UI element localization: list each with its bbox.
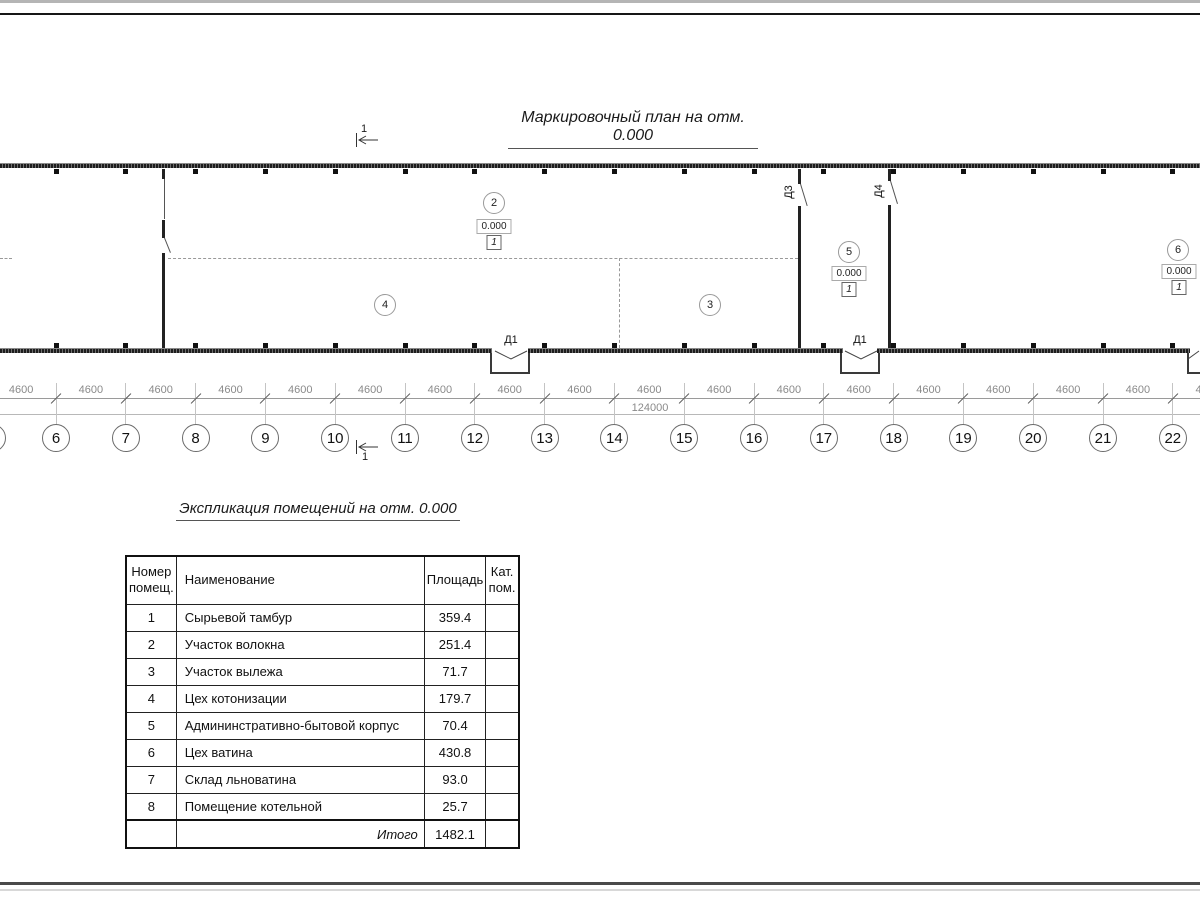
column-mark-bottom [54,343,59,348]
total-label: Итого [176,820,424,848]
exterior-wall-bottom-seg1 [0,348,492,353]
column-mark-bottom [263,343,268,348]
column-mark-bottom [1031,343,1036,348]
bay-dimension-label: 4600 [0,384,56,396]
sheet-frame-top-inner [0,13,1200,15]
column-mark-top [403,169,408,174]
cell-name: Цех ватина [176,739,424,766]
table-row: 3Участок вылежа71.7 [126,658,519,685]
room-floor-type-2: 1 [487,235,502,250]
cell-area: 251.4 [424,631,486,658]
room-elevation-2: 0.000 [476,219,511,234]
explication-title: Экспликация помещений на отм. 0.000 [176,500,460,521]
cell-name: Участок волокна [176,631,424,658]
dashed-line-left-stub [0,258,12,259]
section-mark-bottom-label: 1 [362,451,368,463]
column-mark-bottom [1101,343,1106,348]
column-mark-bottom [403,343,408,348]
header-room-number: Номер помещ. [126,556,176,604]
cell-name: Админинстративно-бытовой корпус [176,712,424,739]
column-mark-bottom [612,343,617,348]
cell-category [486,604,519,631]
dashed-partition-vertical [619,258,620,348]
cell-category [486,631,519,658]
cell-name: Помещение котельной [176,793,424,820]
door-leaf-a2 [164,238,171,253]
bay-dimension-label: 4600 [335,384,405,396]
bay-dimension-label: 4600 [1033,384,1103,396]
column-mark-top [821,169,826,174]
exterior-wall-top [0,163,1200,168]
table-row: 4Цех котонизации179.7 [126,685,519,712]
bay-dimension-label: 4600 [56,384,126,396]
grid-bubble-10: 10 [321,424,349,452]
column-mark-top [612,169,617,174]
door-label-d3: Д3 [783,182,795,202]
column-mark-top [263,169,268,174]
interior-wall-a-main [162,253,165,348]
column-mark-top [1101,169,1106,174]
column-mark-top [1031,169,1036,174]
tambour-middle [840,353,880,374]
column-mark-bottom [961,343,966,348]
column-mark-bottom [821,343,826,348]
door-leaf-a1 [164,179,165,219]
interior-wall-c-main [888,205,891,348]
cell-room-number: 1 [126,604,176,631]
cell-name: Сырьевой тамбур [176,604,424,631]
grid-bubble-16: 16 [740,424,768,452]
cell-category [486,685,519,712]
column-mark-top [123,169,128,174]
header-name: Наименование [176,556,424,604]
room-bubble-4: 4 [374,294,396,316]
column-mark-bottom [1170,343,1175,348]
column-mark-bottom [542,343,547,348]
room-floor-type-6: 1 [1172,280,1187,295]
table-row: 6Цех ватина430.8 [126,739,519,766]
grid-bubble-7: 7 [112,424,140,452]
column-mark-bottom [891,343,896,348]
cell-name: Цех котонизации [176,685,424,712]
table-total-row: Итого 1482.1 [126,820,519,848]
table-row: 7Склад льноватина93.0 [126,766,519,793]
sheet-frame-bottom-outer [0,889,1200,891]
room-bubble-5: 5 [838,241,860,263]
dimension-line-total [0,414,1200,415]
total-empty-cell [126,820,176,848]
column-mark-top [54,169,59,174]
cell-area: 70.4 [424,712,486,739]
room-floor-type-5: 1 [842,282,857,297]
door-label-d1-right: Д1 [853,334,867,346]
cell-area: 25.7 [424,793,486,820]
bay-dimension-label: 4600 [545,384,615,396]
column-mark-bottom [752,343,757,348]
column-mark-bottom [682,343,687,348]
bay-dimension-label: 4600 [963,384,1033,396]
exterior-wall-bottom-seg3 [877,348,1190,353]
grid-bubble-18: 18 [880,424,908,452]
bay-dimension-label: 4600 [126,384,196,396]
cell-category [486,739,519,766]
cell-category [486,793,519,820]
header-category: Кат. пом. [486,556,519,604]
cell-area: 430.8 [424,739,486,766]
drawing-sheet: Маркировочный план на отм. 0.000 1 1 Д3 … [0,0,1200,900]
grid-bubble-15: 15 [670,424,698,452]
interior-wall-b-main [798,206,801,348]
tambour-right-partial [1187,353,1200,374]
bay-dimension-label: 4600 [265,384,335,396]
bay-dimension-label: 4600 [405,384,475,396]
grid-bubble-22: 22 [1159,424,1187,452]
cell-room-number: 6 [126,739,176,766]
bay-dimension-label: 4600 [1103,384,1173,396]
table-header-row: Номер помещ. Наименование Площадь Кат. п… [126,556,519,604]
total-value: 1482.1 [424,820,486,848]
bay-dimension-label: 4600 [196,384,266,396]
cell-area: 93.0 [424,766,486,793]
grid-bubble-21: 21 [1089,424,1117,452]
room-elevation-6: 0.000 [1161,264,1196,279]
interior-wall-a-mid [162,220,165,238]
cell-area: 179.7 [424,685,486,712]
column-mark-top [193,169,198,174]
bay-dimension-label: 4600 [754,384,824,396]
bay-dimension-label: 4600 [894,384,964,396]
cell-area: 71.7 [424,658,486,685]
cell-room-number: 3 [126,658,176,685]
explication-table: Номер помещ. Наименование Площадь Кат. п… [125,555,520,849]
door-leaf-d3 [800,184,808,206]
grid-bubble-17: 17 [810,424,838,452]
room-bubble-6: 6 [1167,239,1189,261]
table-row: 8Помещение котельной25.7 [126,793,519,820]
cell-room-number: 7 [126,766,176,793]
column-mark-top [472,169,477,174]
column-mark-top [752,169,757,174]
sheet-frame-top-outer [0,0,1200,3]
section-mark-top-label: 1 [361,123,367,135]
table-row: 5Админинстративно-бытовой корпус70.4 [126,712,519,739]
column-mark-bottom [472,343,477,348]
table-row: 2Участок волокна251.4 [126,631,519,658]
grid-bubble-11: 11 [391,424,419,452]
exterior-wall-bottom-seg2 [528,348,843,353]
cell-room-number: 2 [126,631,176,658]
column-mark-top [682,169,687,174]
column-mark-bottom [193,343,198,348]
cell-room-number: 8 [126,793,176,820]
plan-title: Маркировочный план на отм. 0.000 [508,109,758,149]
cell-name: Участок вылежа [176,658,424,685]
door-label-d4: Д4 [873,181,885,201]
column-mark-top [1170,169,1175,174]
dashed-partition-horizontal [168,258,798,259]
column-mark-bottom [123,343,128,348]
room-elevation-5: 0.000 [831,266,866,281]
column-mark-top [333,169,338,174]
cell-category [486,712,519,739]
bay-dimension-label: 4600 [1173,384,1200,396]
bay-dimension-label: 4600 [475,384,545,396]
table-row: 1Сырьевой тамбур359.4 [126,604,519,631]
room-bubble-3: 3 [699,294,721,316]
room-bubble-2: 2 [483,192,505,214]
total-dimension-label: 124000 [605,402,695,414]
grid-bubble-19: 19 [949,424,977,452]
cell-category [486,658,519,685]
cell-category [486,766,519,793]
grid-bubble-8: 8 [182,424,210,452]
interior-wall-b-stub [798,169,801,184]
total-category-cell [486,820,519,848]
section-arrow-top-icon [357,135,379,145]
door-leaf-d4 [890,181,898,204]
cell-room-number: 5 [126,712,176,739]
grid-bubble-13: 13 [531,424,559,452]
bay-dimension-label: 4600 [684,384,754,396]
cell-room-number: 4 [126,685,176,712]
interior-wall-a-stub [162,169,165,179]
cell-name: Склад льноватина [176,766,424,793]
bay-dimension-label: 4600 [824,384,894,396]
grid-bubble-9: 9 [251,424,279,452]
dimension-line-bays [0,398,1200,399]
grid-bubble-partial-left [0,424,6,452]
grid-bubble-12: 12 [461,424,489,452]
column-mark-top [961,169,966,174]
column-mark-top [891,169,896,174]
grid-bubble-14: 14 [600,424,628,452]
column-mark-top [542,169,547,174]
sheet-frame-bottom-inner [0,882,1200,885]
tambour-left [490,353,530,374]
grid-bubble-6: 6 [42,424,70,452]
cell-area: 359.4 [424,604,486,631]
bay-dimension-label: 4600 [614,384,684,396]
grid-bubble-20: 20 [1019,424,1047,452]
door-label-d1-left: Д1 [504,334,518,346]
column-mark-bottom [333,343,338,348]
header-area: Площадь [424,556,486,604]
